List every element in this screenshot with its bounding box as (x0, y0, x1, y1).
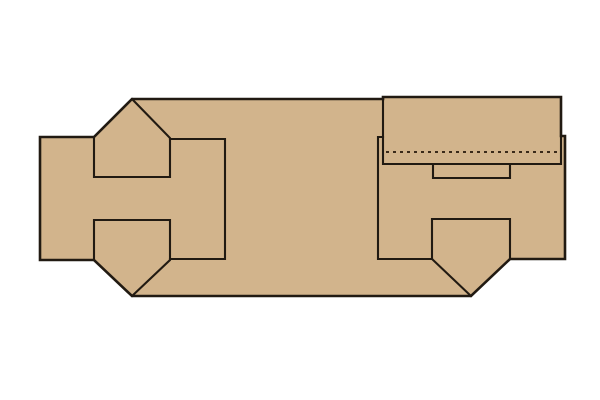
dieline-silhouette (40, 97, 565, 296)
dieline-canvas (0, 0, 600, 400)
box-dieline-diagram (0, 0, 600, 400)
